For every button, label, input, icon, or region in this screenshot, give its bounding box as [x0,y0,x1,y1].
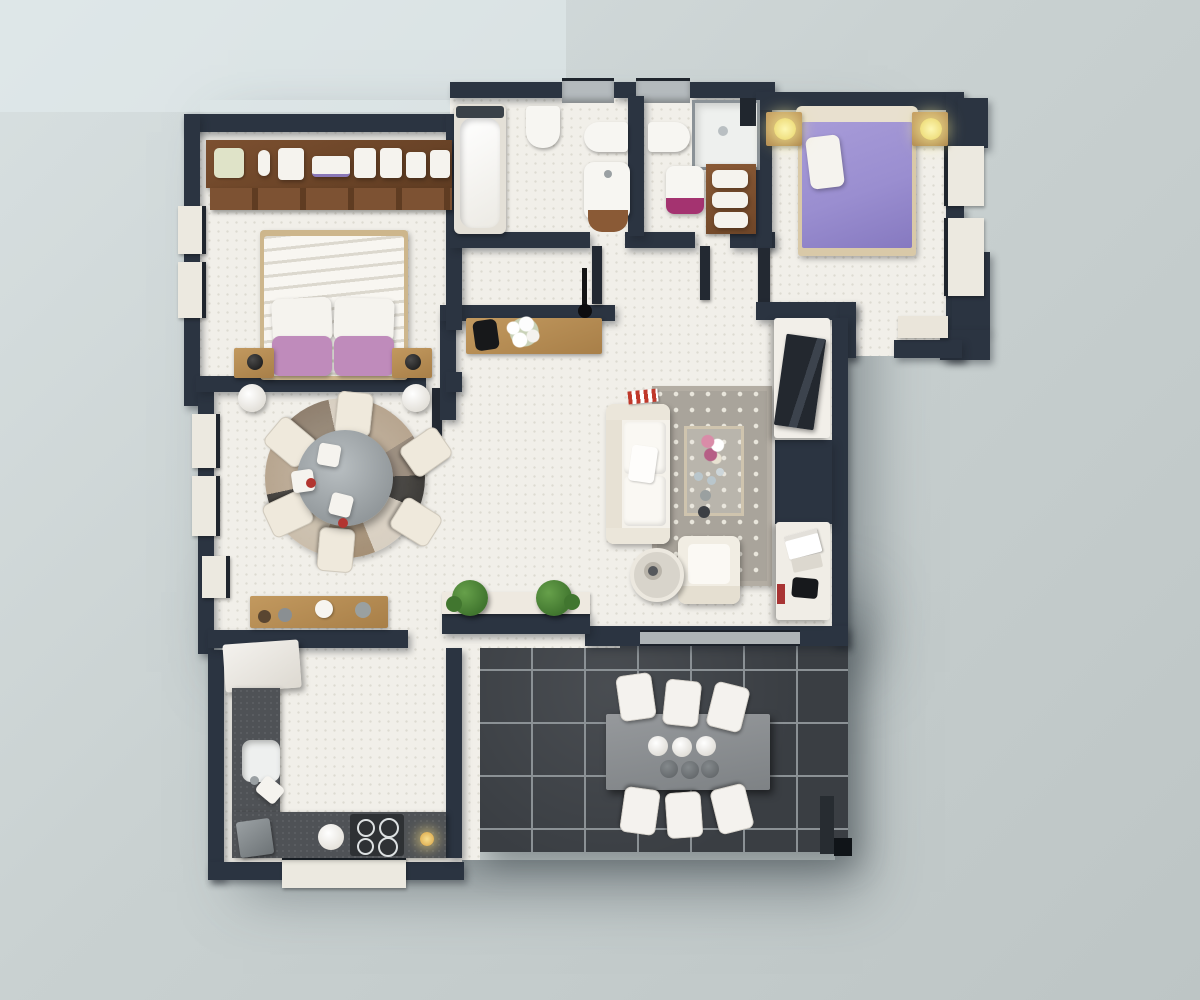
entry-window-sill-2 [636,78,690,103]
refrigerator [222,639,301,692]
entry-window-sill-1 [562,78,614,103]
bathroom1-door-panel [592,246,602,304]
terrace-bowl-1 [648,736,668,756]
sofa-backrest [606,404,622,544]
towel-2 [712,192,748,208]
floor-vase-right [402,384,430,412]
wardrobe-item-stack-5 [430,150,450,178]
bedroom2-window-bench [898,316,948,338]
bedroom1-window-2 [178,262,206,318]
planter-left-leaf [446,596,462,612]
toilet-bath1 [584,122,628,152]
glow-lamp-left [774,118,796,140]
wall-bath-bottom-left [450,232,590,248]
bed1-pillow-pink-left [272,336,332,376]
dining-window-2 [192,476,220,536]
bedroom1-window-1 [178,206,206,254]
wall-bath-divider [628,96,644,236]
bathroom2-door-panel [700,246,710,300]
wardrobe-item-towel-roll [258,150,270,176]
armchair-cushion [688,544,730,584]
floor-vase-left [238,384,266,412]
terrace-bowl-3 [696,736,716,756]
terrace-sliding-door [640,630,800,646]
towel-3 [714,212,748,228]
planter-right-leaf [564,594,580,610]
terrace-chair-2 [662,678,703,728]
bedroom2-window-2 [944,218,984,296]
sink-faucet [250,776,259,785]
kitchen-window-south [282,856,406,888]
kitchen-sink [242,740,280,782]
bedroom2-window-1 [944,146,984,206]
dining-window-3 [202,556,230,598]
bed2-pillow-white [805,134,845,190]
terrace-chair-5 [664,791,703,839]
desk-red-book [777,584,785,604]
vanity-wood-base-bath1 [588,210,628,232]
wardrobe-item-striped-pillow [312,156,350,177]
bed1-pillow-pink-right [334,336,394,376]
sideboard-plate-white [315,600,333,618]
wall-kitchen-left [208,650,224,880]
sideboard-plate-gray [355,602,371,618]
terrace-step-corner [834,838,852,856]
wall-bedroom2-right-pier-top [958,98,988,148]
wall-bedroom1-top [184,114,462,132]
side-table-item [648,566,658,576]
coffee-table-flowers [698,430,726,468]
wardrobe-drawer-row [210,188,452,210]
wall-kitchen-right [446,648,462,858]
terrace-vase-2 [681,761,699,779]
wardrobe-item-stack-4 [406,152,426,178]
dining-chair-6 [316,527,356,574]
table-lamp-right [405,354,421,370]
terrace-step-edge [820,796,834,854]
pendant-lamp-shade [578,304,592,318]
sofa-cushion-2 [624,476,666,526]
desk-black-object [791,577,819,599]
towel-1 [712,170,748,188]
coffee-table-glass-3 [716,468,724,476]
vanity-magenta-base [666,198,704,214]
bathtub-ledge [456,106,504,118]
wall-bath-top-left [450,82,562,98]
table-lamp-left [247,354,263,370]
shower-drain [718,126,728,136]
kitchen-bowl [318,824,344,850]
coffee-machine [236,818,275,858]
shower-frame-corner [740,98,756,126]
terrace-vase-3 [701,760,719,778]
dining-window-1 [192,414,220,468]
cooktop-burner-4 [378,837,398,857]
wall-living-pier [775,440,832,524]
floor-plan-scene [0,0,1200,1000]
coffee-table-glass-1 [694,472,703,481]
dining-red-item-1 [306,478,316,488]
bathtub-basin [460,118,500,228]
wall-bedroom2-bottom [894,340,962,358]
dining-plate-1 [316,442,341,467]
coffee-table-glass-2 [707,476,716,485]
glow-lamp-right [920,118,942,140]
console-flower-vase [500,314,544,354]
bedroom2-door-panel [758,248,770,306]
toilet-bath2 [648,122,690,152]
coffee-table-bowl [700,490,711,501]
wardrobe-item-stack-3 [380,148,402,178]
pendant-lamp-rod [582,268,587,308]
bidet [526,106,560,148]
wall-bedroom1-right-stub [446,372,462,392]
terrace-chair-1 [615,672,657,723]
dining-red-item-2 [338,518,348,528]
cooktop-burner-1 [357,819,375,837]
wardrobe-item-green-pillow [214,148,244,178]
bed2-headboard [796,106,918,122]
cooktop-burner-2 [379,818,399,838]
wardrobe-item-stack-2 [354,148,376,178]
terrace-vase-1 [660,760,678,778]
terrace-chair-4 [619,786,661,837]
terrace-bowl-2 [672,737,692,757]
wardrobe-item-stack-1 [278,148,304,180]
sideboard-knob-gray [278,608,292,622]
vanity-faucet-bath1 [604,170,612,178]
wall-living-right [832,318,848,646]
coffee-table-dark-item [698,506,710,518]
cooktop-burner-3 [357,838,374,855]
sofa-armrest-top [606,404,670,420]
wall-bedroom1-left [184,114,200,406]
sideboard-knob-dark [258,610,271,623]
armchair-backrest [678,586,740,604]
sofa-throw [628,444,659,483]
kitchen-candle [420,832,434,846]
sofa-armrest-bottom [606,528,670,544]
console-bag [472,318,500,351]
corridor-floor [450,240,770,315]
